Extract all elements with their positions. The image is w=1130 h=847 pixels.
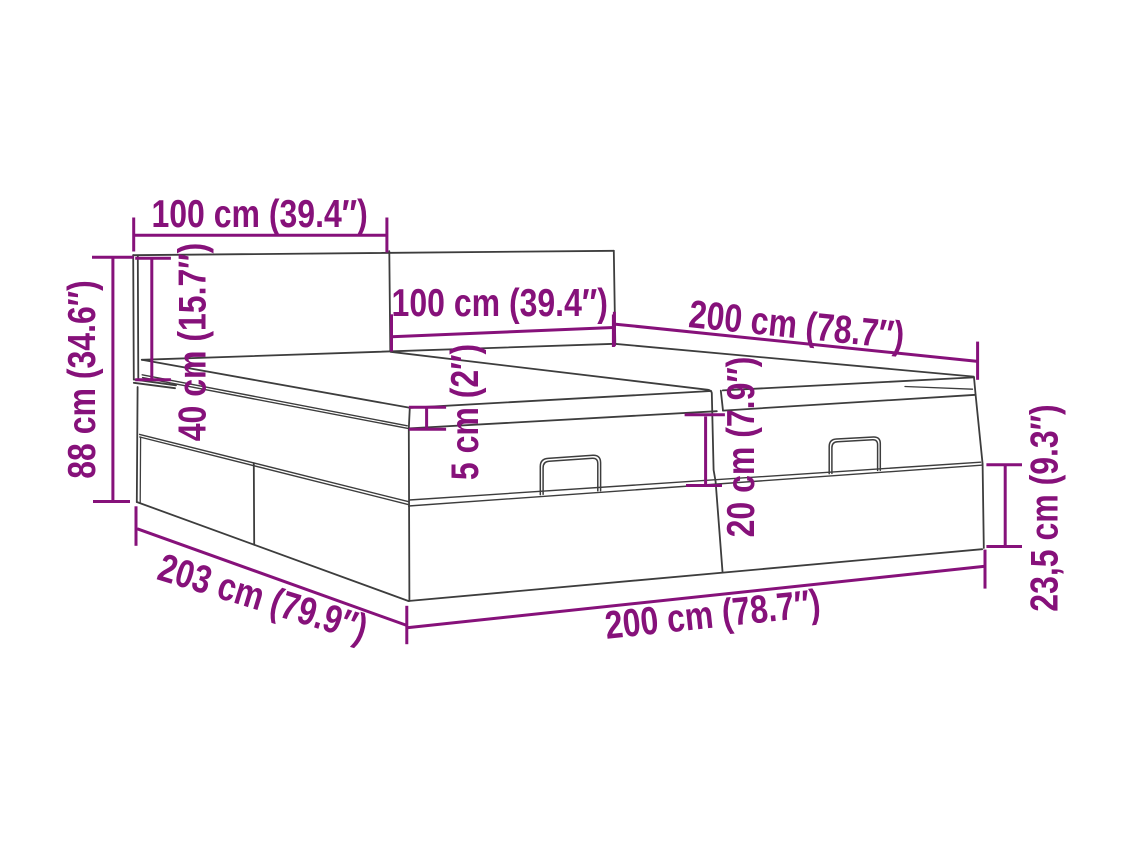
svg-text:23,5 cm (9.3″): 23,5 cm (9.3″): [1022, 404, 1066, 611]
svg-text:100 cm (39.4″): 100 cm (39.4″): [151, 192, 367, 236]
svg-text:100 cm (39.4″): 100 cm (39.4″): [392, 281, 608, 325]
svg-text:88 cm (34.6″): 88 cm (34.6″): [60, 280, 104, 478]
svg-text:5 cm (2″): 5 cm (2″): [443, 344, 487, 480]
svg-text:40 cm (15.7″): 40 cm (15.7″): [170, 243, 214, 441]
svg-text:20 cm (7.9″): 20 cm (7.9″): [719, 357, 763, 538]
